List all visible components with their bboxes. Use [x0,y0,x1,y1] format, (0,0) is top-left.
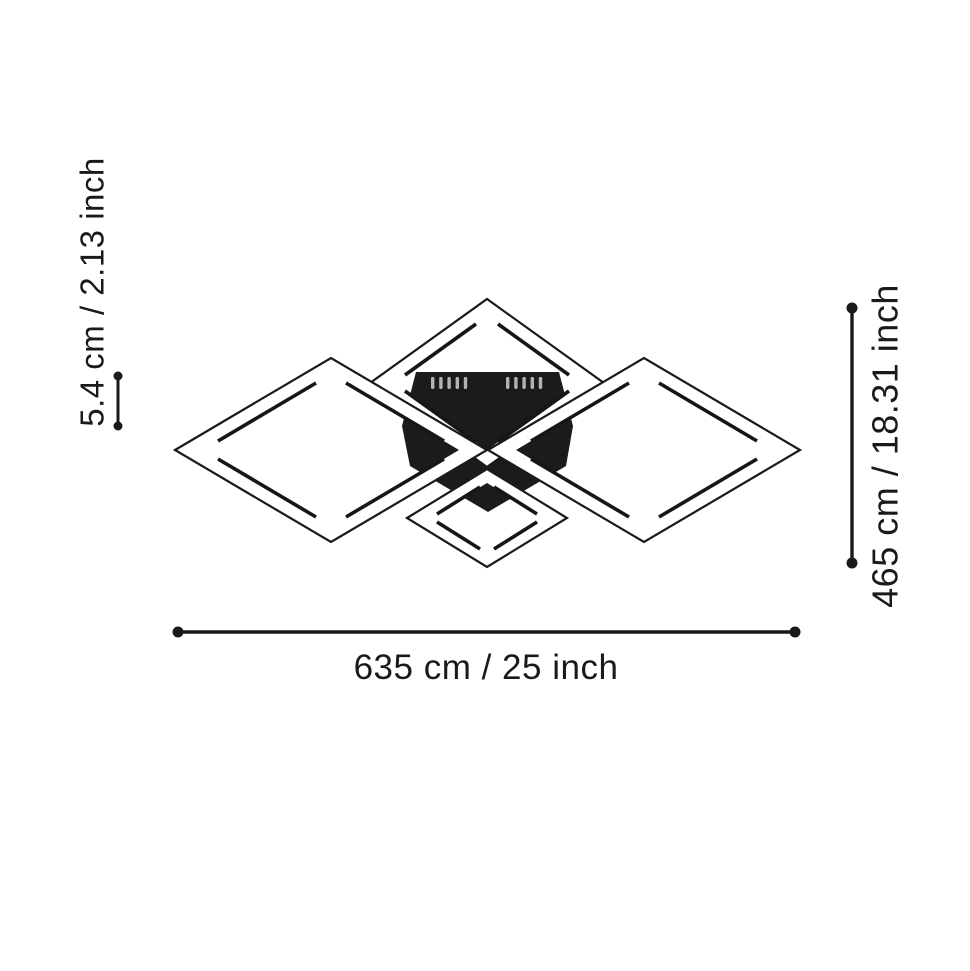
dimension-endpoint-dot [114,422,123,431]
canopy [402,372,573,512]
width-dimension: 635 cm / 25 inch [173,627,801,688]
dimension-endpoint-dot [114,372,123,381]
dimension-endpoint-dot [790,627,801,638]
dimension-endpoint-dot [173,627,184,638]
product-dimension-diagram: 5.4 cm / 2.13 inch 465 cm / 18.31 inch 6… [0,0,970,971]
depth-dimension: 5.4 cm / 2.13 inch [74,157,123,430]
diagram-canvas: 5.4 cm / 2.13 inch 465 cm / 18.31 inch 6… [0,0,970,971]
depth-dimension-label: 5.4 cm / 2.13 inch [74,157,111,426]
height-dimension: 465 cm / 18.31 inch [847,284,906,608]
dimension-endpoint-dot [847,558,858,569]
width-dimension-label: 635 cm / 25 inch [354,648,619,687]
dimension-endpoint-dot [847,303,858,314]
ceiling-light-fixture [175,299,800,567]
height-dimension-label: 465 cm / 18.31 inch [865,284,906,608]
